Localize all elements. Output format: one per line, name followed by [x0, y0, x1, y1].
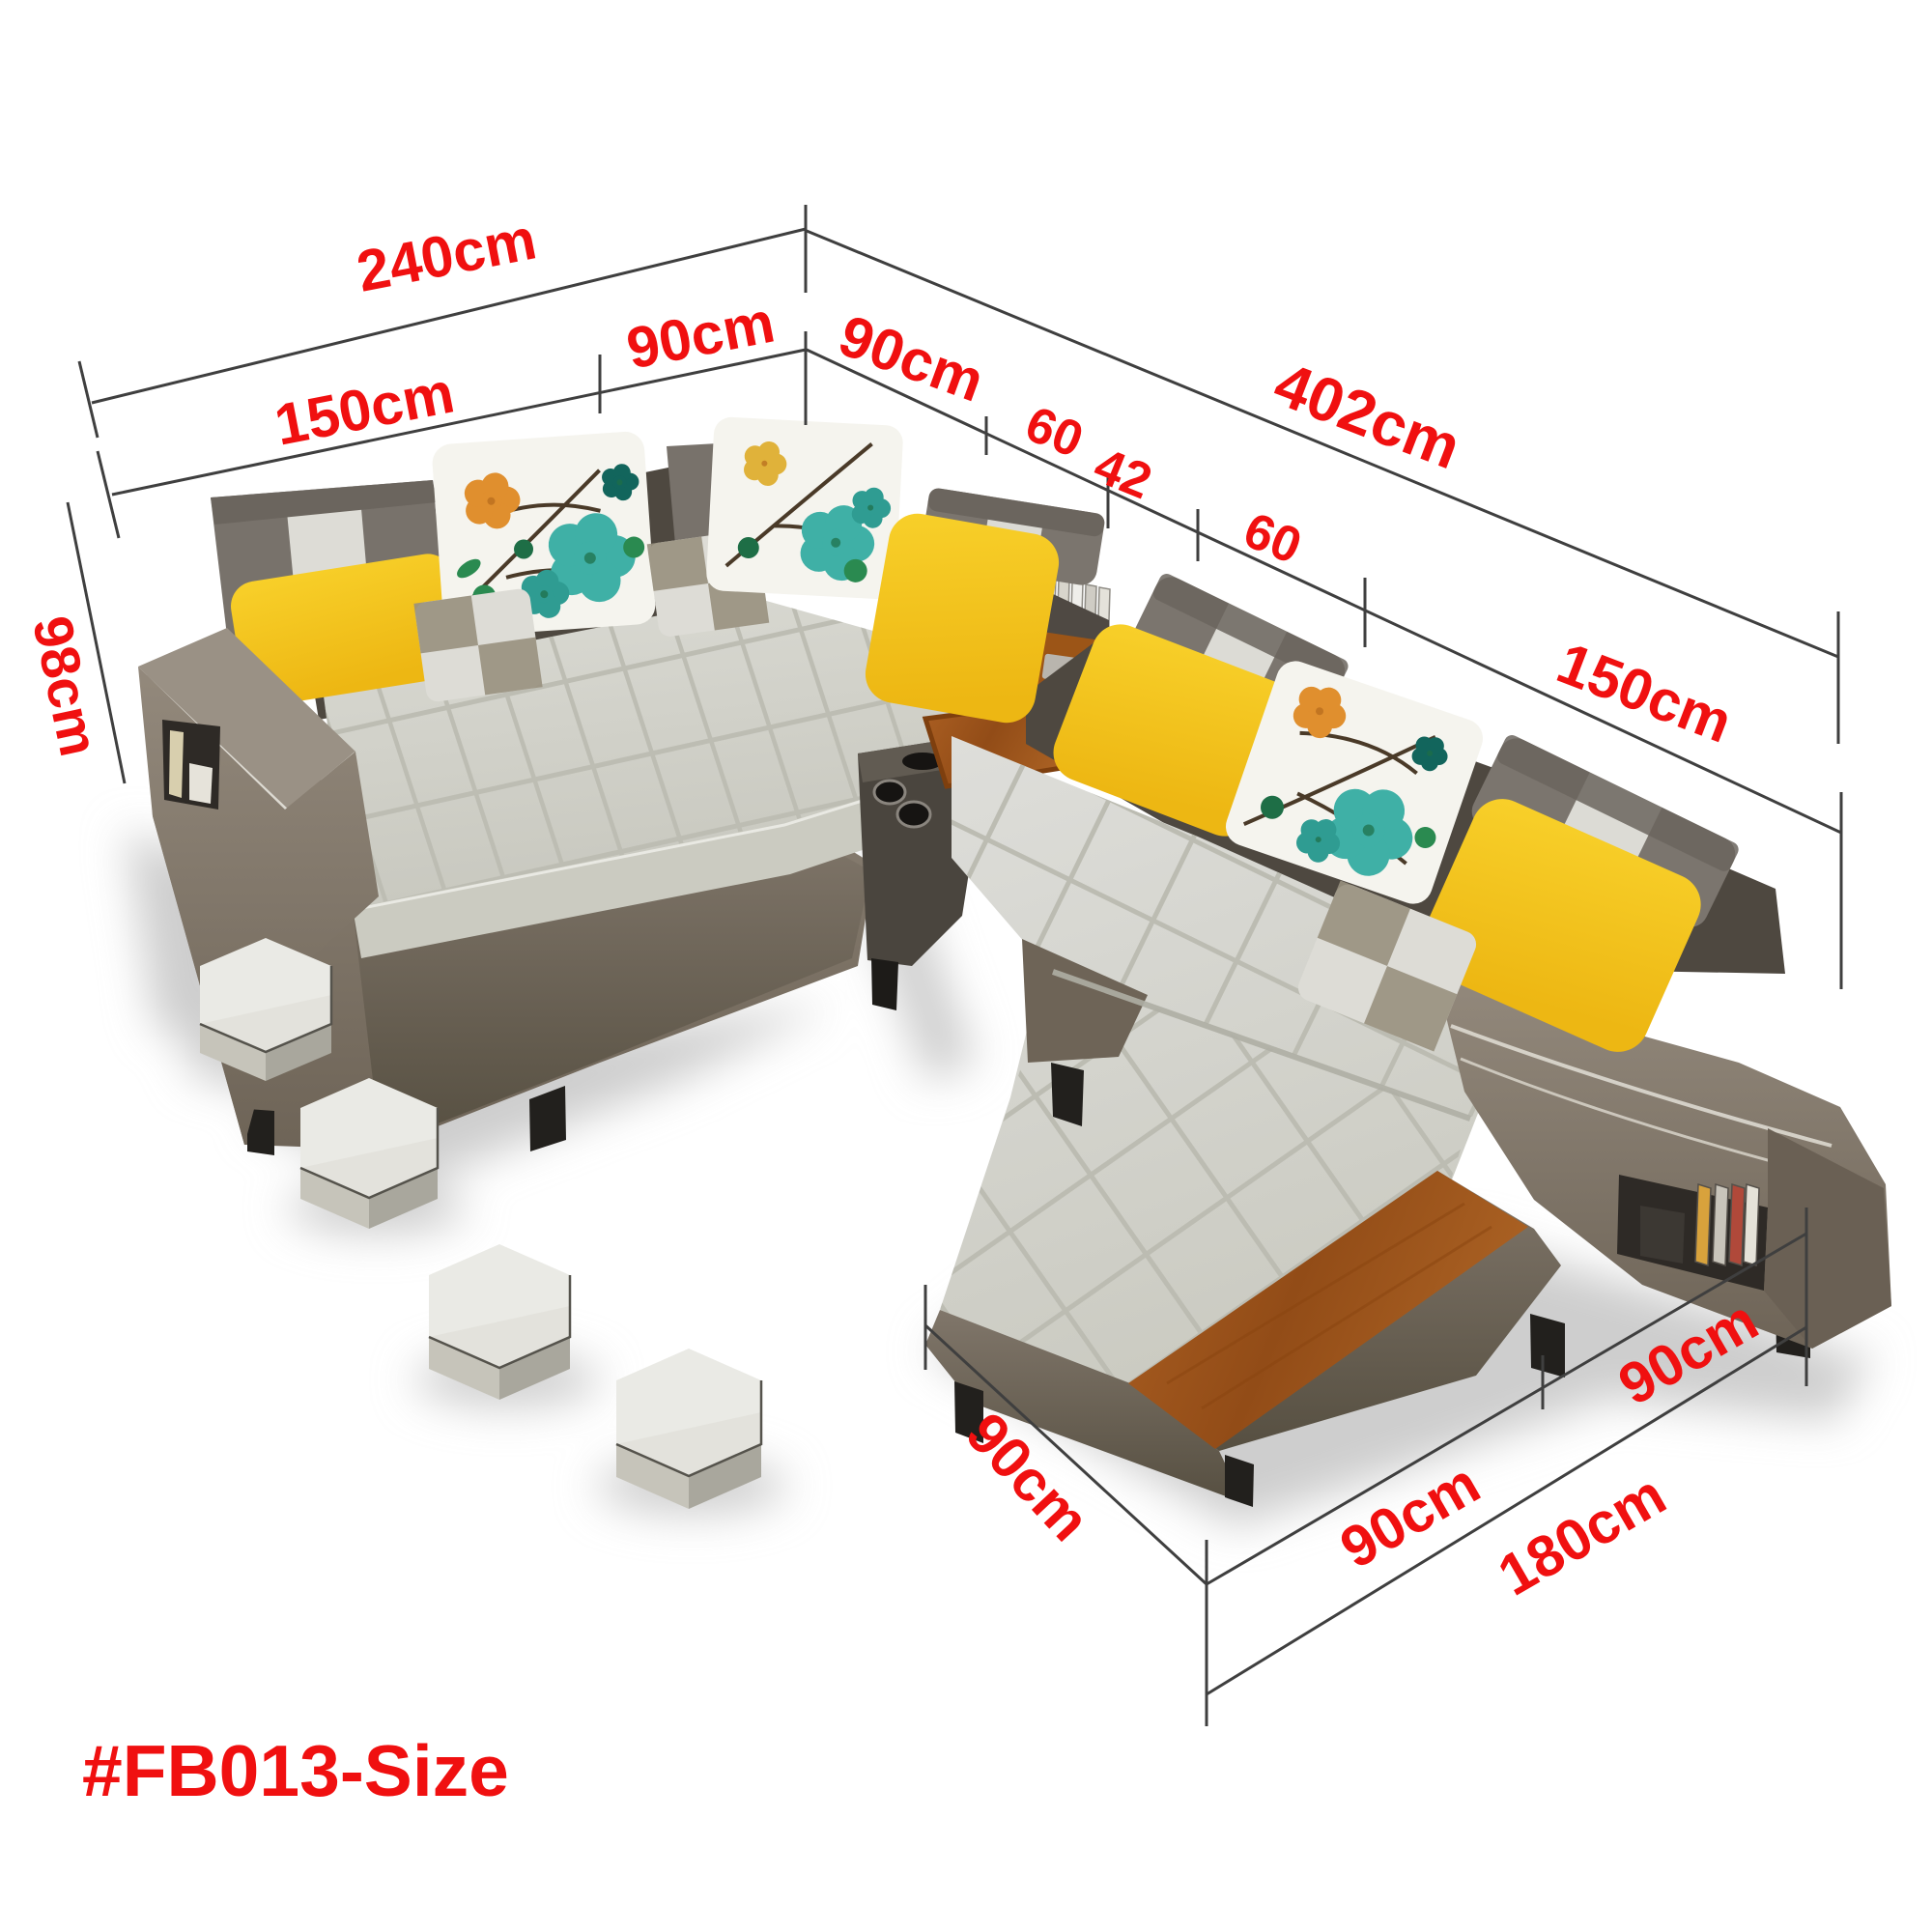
- svg-text:#FB013-Size: #FB013-Size: [82, 1730, 509, 1811]
